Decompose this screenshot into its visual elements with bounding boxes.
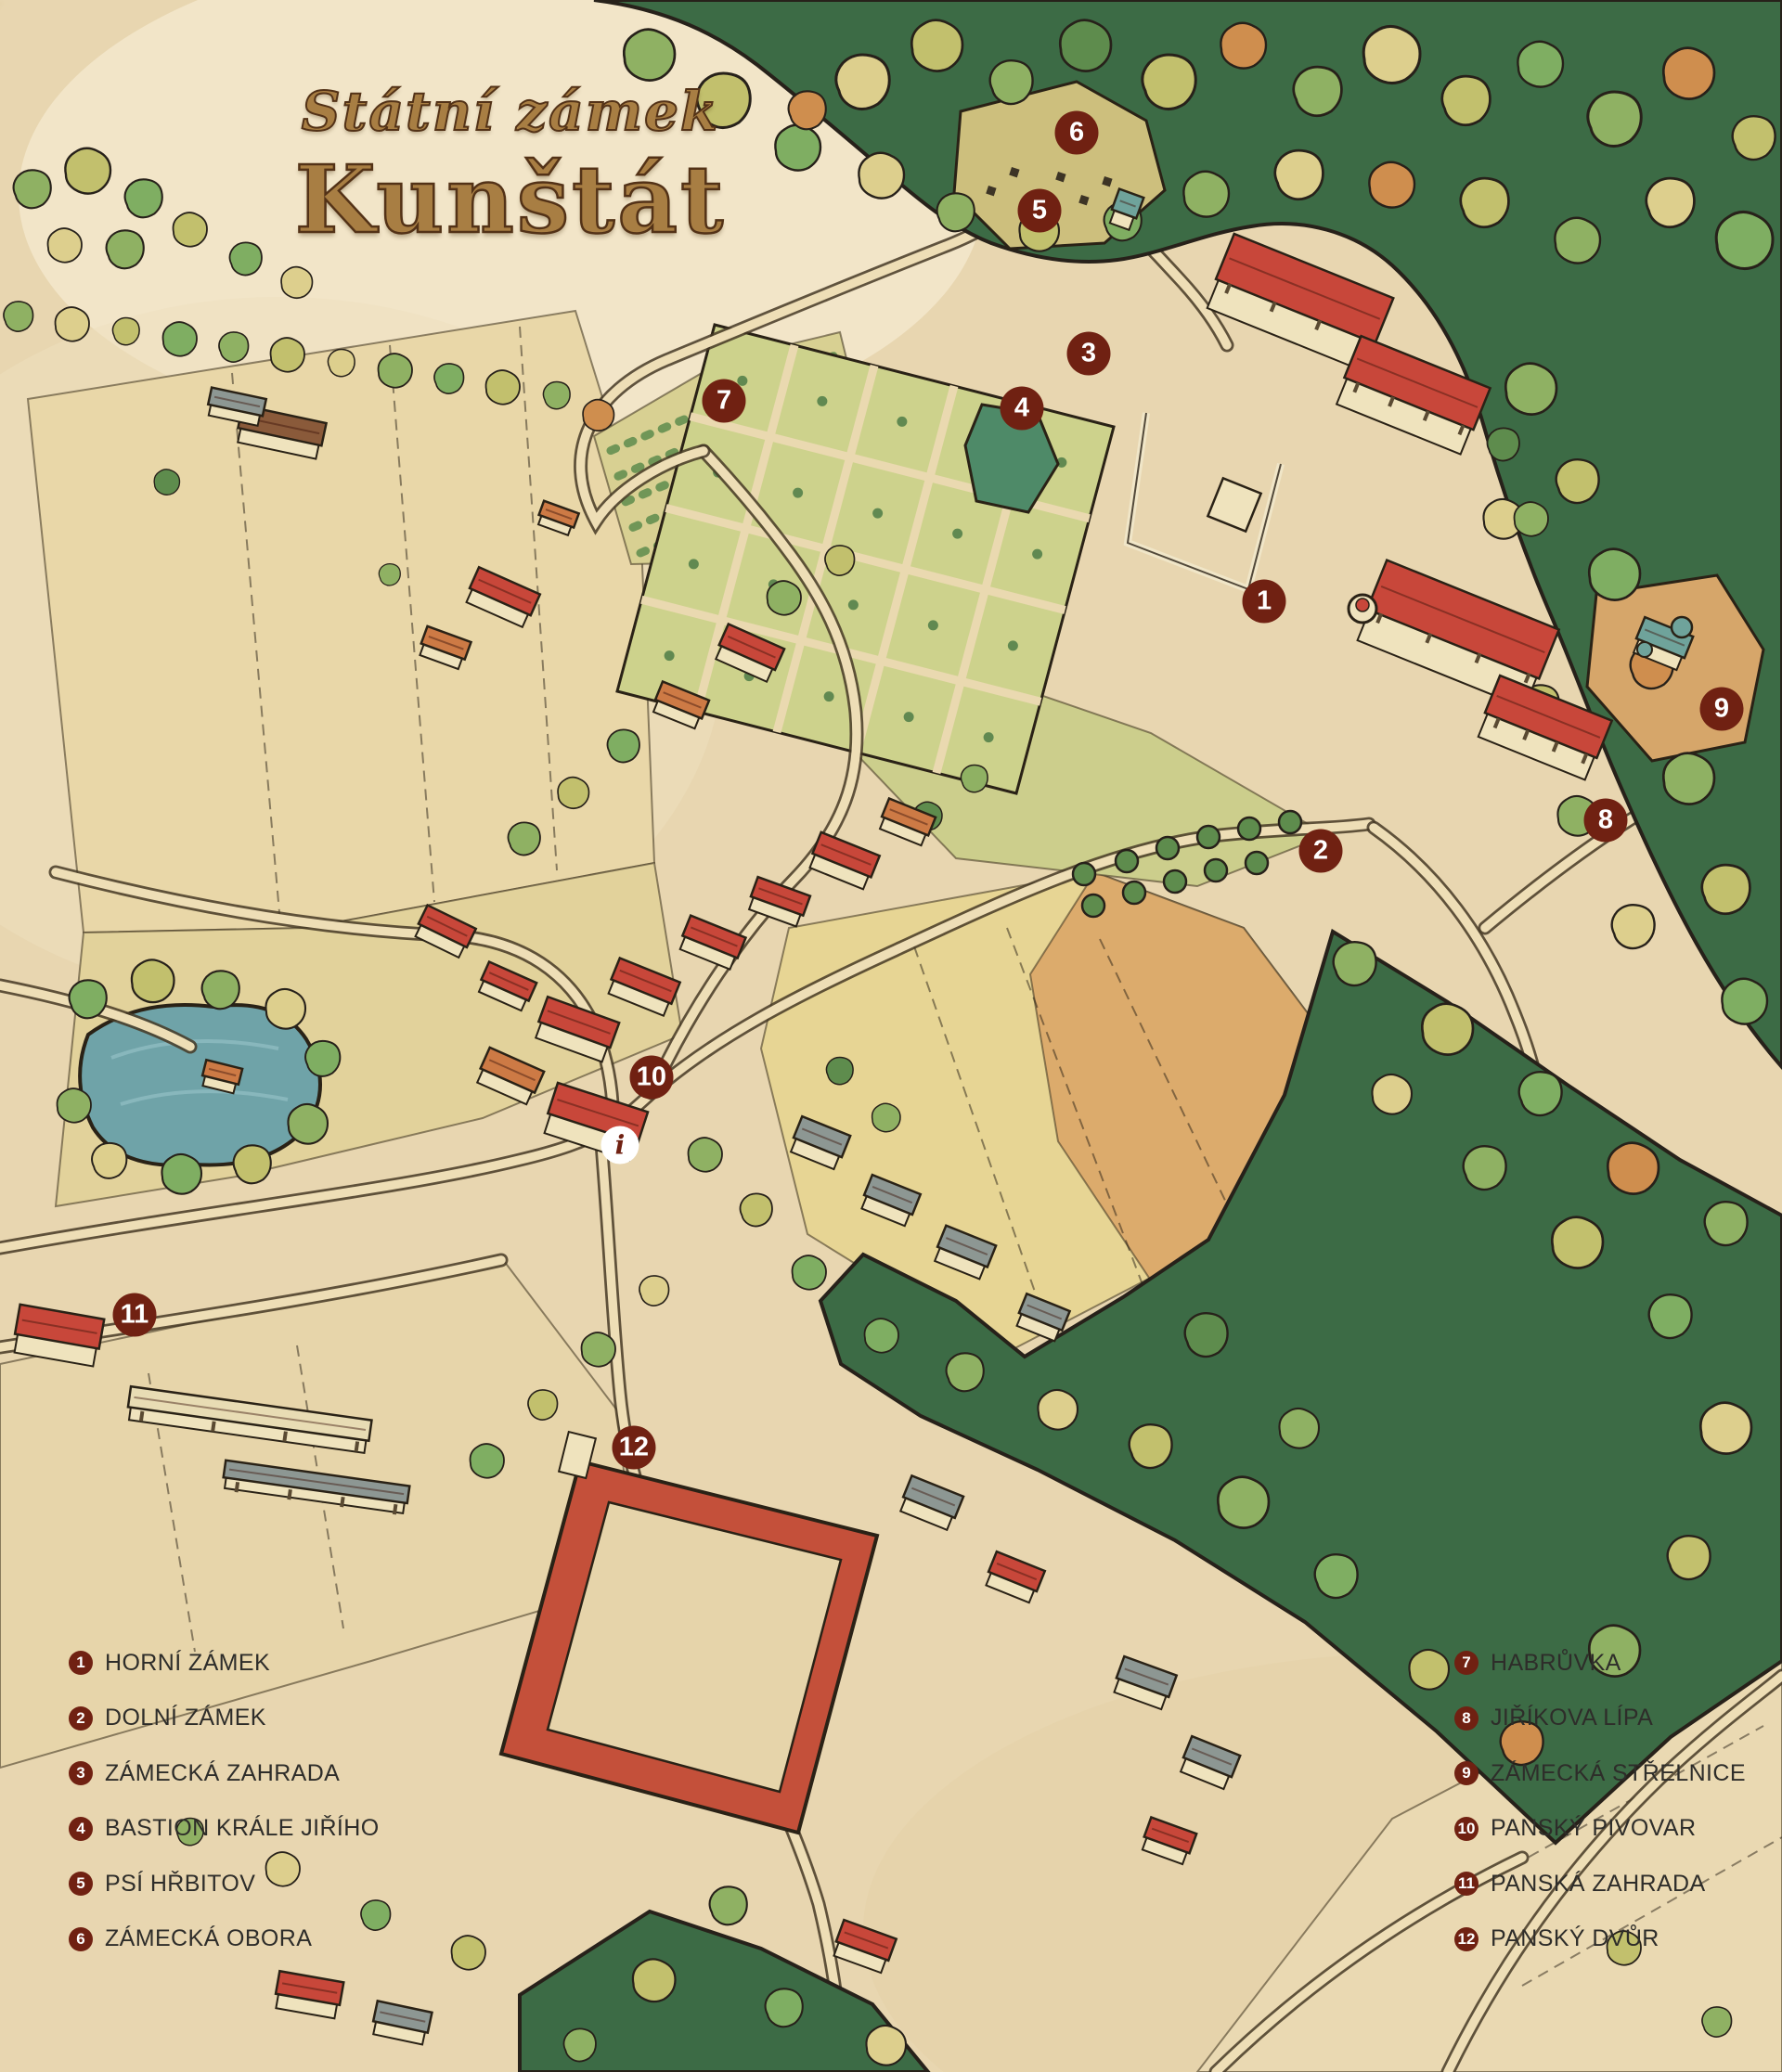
legend-item-10: 10PANSKÝ PIVOVAR	[1454, 1817, 1746, 1841]
legend-item-11: 11PANSKÁ ZAHRADA	[1454, 1872, 1746, 1896]
legend-label-10: PANSKÝ PIVOVAR	[1491, 1815, 1696, 1842]
legend-left-column: 1HORNÍ ZÁMEK 2DOLNÍ ZÁMEK 3ZÁMECKÁ ZAHRA…	[69, 1651, 380, 1951]
legend-label-6: ZÁMECKÁ OBORA	[105, 1925, 312, 1952]
legend-label-9: ZÁMECKÁ STŘELNICE	[1491, 1760, 1746, 1787]
legend-label-8: JIŘÍKOVA LÍPA	[1491, 1705, 1653, 1731]
legend-item-5: 5PSÍ HŘBITOV	[69, 1872, 380, 1896]
legend-item-7: 7HABRŮVKA	[1454, 1651, 1746, 1675]
marker-number: 3	[1081, 338, 1096, 368]
legend-badge-10: 10	[1454, 1817, 1479, 1841]
legend-right-column: 7HABRŮVKA 8JIŘÍKOVA LÍPA 9ZÁMECKÁ STŘELN…	[1454, 1651, 1746, 1951]
info-point-marker[interactable]: i	[600, 1126, 639, 1164]
legend-item-2: 2DOLNÍ ZÁMEK	[69, 1706, 380, 1731]
legend-label-4: BASTION KRÁLE JIŘÍHO	[105, 1815, 380, 1842]
marker-number: 10	[637, 1062, 666, 1093]
info-icon: i	[615, 1129, 626, 1160]
marker-number: 9	[1714, 693, 1729, 724]
map-marker-11[interactable]: 11	[112, 1293, 156, 1337]
legend-item-9: 9ZÁMECKÁ STŘELNICE	[1454, 1761, 1746, 1785]
legend-badge-12: 12	[1454, 1927, 1479, 1951]
marker-number: 2	[1313, 836, 1328, 867]
marker-number: 11	[121, 1300, 149, 1331]
map-marker-2[interactable]: 2	[1298, 830, 1342, 873]
legend-label-3: ZÁMECKÁ ZAHRADA	[105, 1760, 340, 1787]
legend-badge-1: 1	[69, 1651, 93, 1675]
legend-badge-11: 11	[1454, 1872, 1479, 1896]
legend-badge-5: 5	[69, 1872, 93, 1896]
legend-item-4: 4BASTION KRÁLE JIŘÍHO	[69, 1817, 380, 1841]
legend-label-12: PANSKÝ DVŮR	[1491, 1925, 1659, 1952]
legend-item-3: 3ZÁMECKÁ ZAHRADA	[69, 1761, 380, 1785]
map-marker-1[interactable]: 1	[1243, 580, 1286, 624]
legend-label-5: PSÍ HŘBITOV	[105, 1871, 255, 1898]
legend-badge-8: 8	[1454, 1706, 1479, 1731]
legend-badge-6: 6	[69, 1927, 93, 1951]
legend-item-8: 8JIŘÍKOVA LÍPA	[1454, 1706, 1746, 1731]
map-marker-5[interactable]: 5	[1017, 189, 1061, 233]
marker-number: 5	[1032, 196, 1047, 226]
marker-number: 12	[619, 1432, 649, 1462]
map-marker-10[interactable]: 10	[629, 1056, 673, 1100]
map-marker-4[interactable]: 4	[1000, 386, 1043, 430]
map-marker-7[interactable]: 7	[703, 380, 746, 423]
marker-number: 4	[1014, 393, 1029, 423]
marker-number: 8	[1598, 805, 1613, 836]
marker-number: 1	[1257, 586, 1272, 617]
legend-badge-3: 3	[69, 1761, 93, 1785]
legend-label-7: HABRŮVKA	[1491, 1650, 1621, 1677]
legend-badge-4: 4	[69, 1817, 93, 1841]
map-marker-12[interactable]: 12	[612, 1425, 655, 1469]
legend-label-1: HORNÍ ZÁMEK	[105, 1650, 270, 1677]
legend-item-6: 6ZÁMECKÁ OBORA	[69, 1927, 380, 1951]
legend-item-12: 12PANSKÝ DVŮR	[1454, 1927, 1746, 1951]
marker-number: 6	[1069, 117, 1084, 148]
map-marker-8[interactable]: 8	[1583, 799, 1627, 843]
map-marker-9[interactable]: 9	[1699, 687, 1743, 730]
legend-label-2: DOLNÍ ZÁMEK	[105, 1705, 266, 1731]
legend-badge-2: 2	[69, 1706, 93, 1731]
legend-item-1: 1HORNÍ ZÁMEK	[69, 1651, 380, 1675]
legend-badge-9: 9	[1454, 1761, 1479, 1785]
map-marker-3[interactable]: 3	[1066, 331, 1110, 375]
kunstat-castle-map-poster: Státní zámek Kunštát 1 2 3 4 5 6 7 8 9 1…	[0, 0, 1782, 2072]
legend-badge-7: 7	[1454, 1651, 1479, 1675]
map-marker-6[interactable]: 6	[1055, 110, 1099, 154]
legend-label-11: PANSKÁ ZAHRADA	[1491, 1871, 1706, 1898]
marker-number: 7	[717, 386, 731, 417]
